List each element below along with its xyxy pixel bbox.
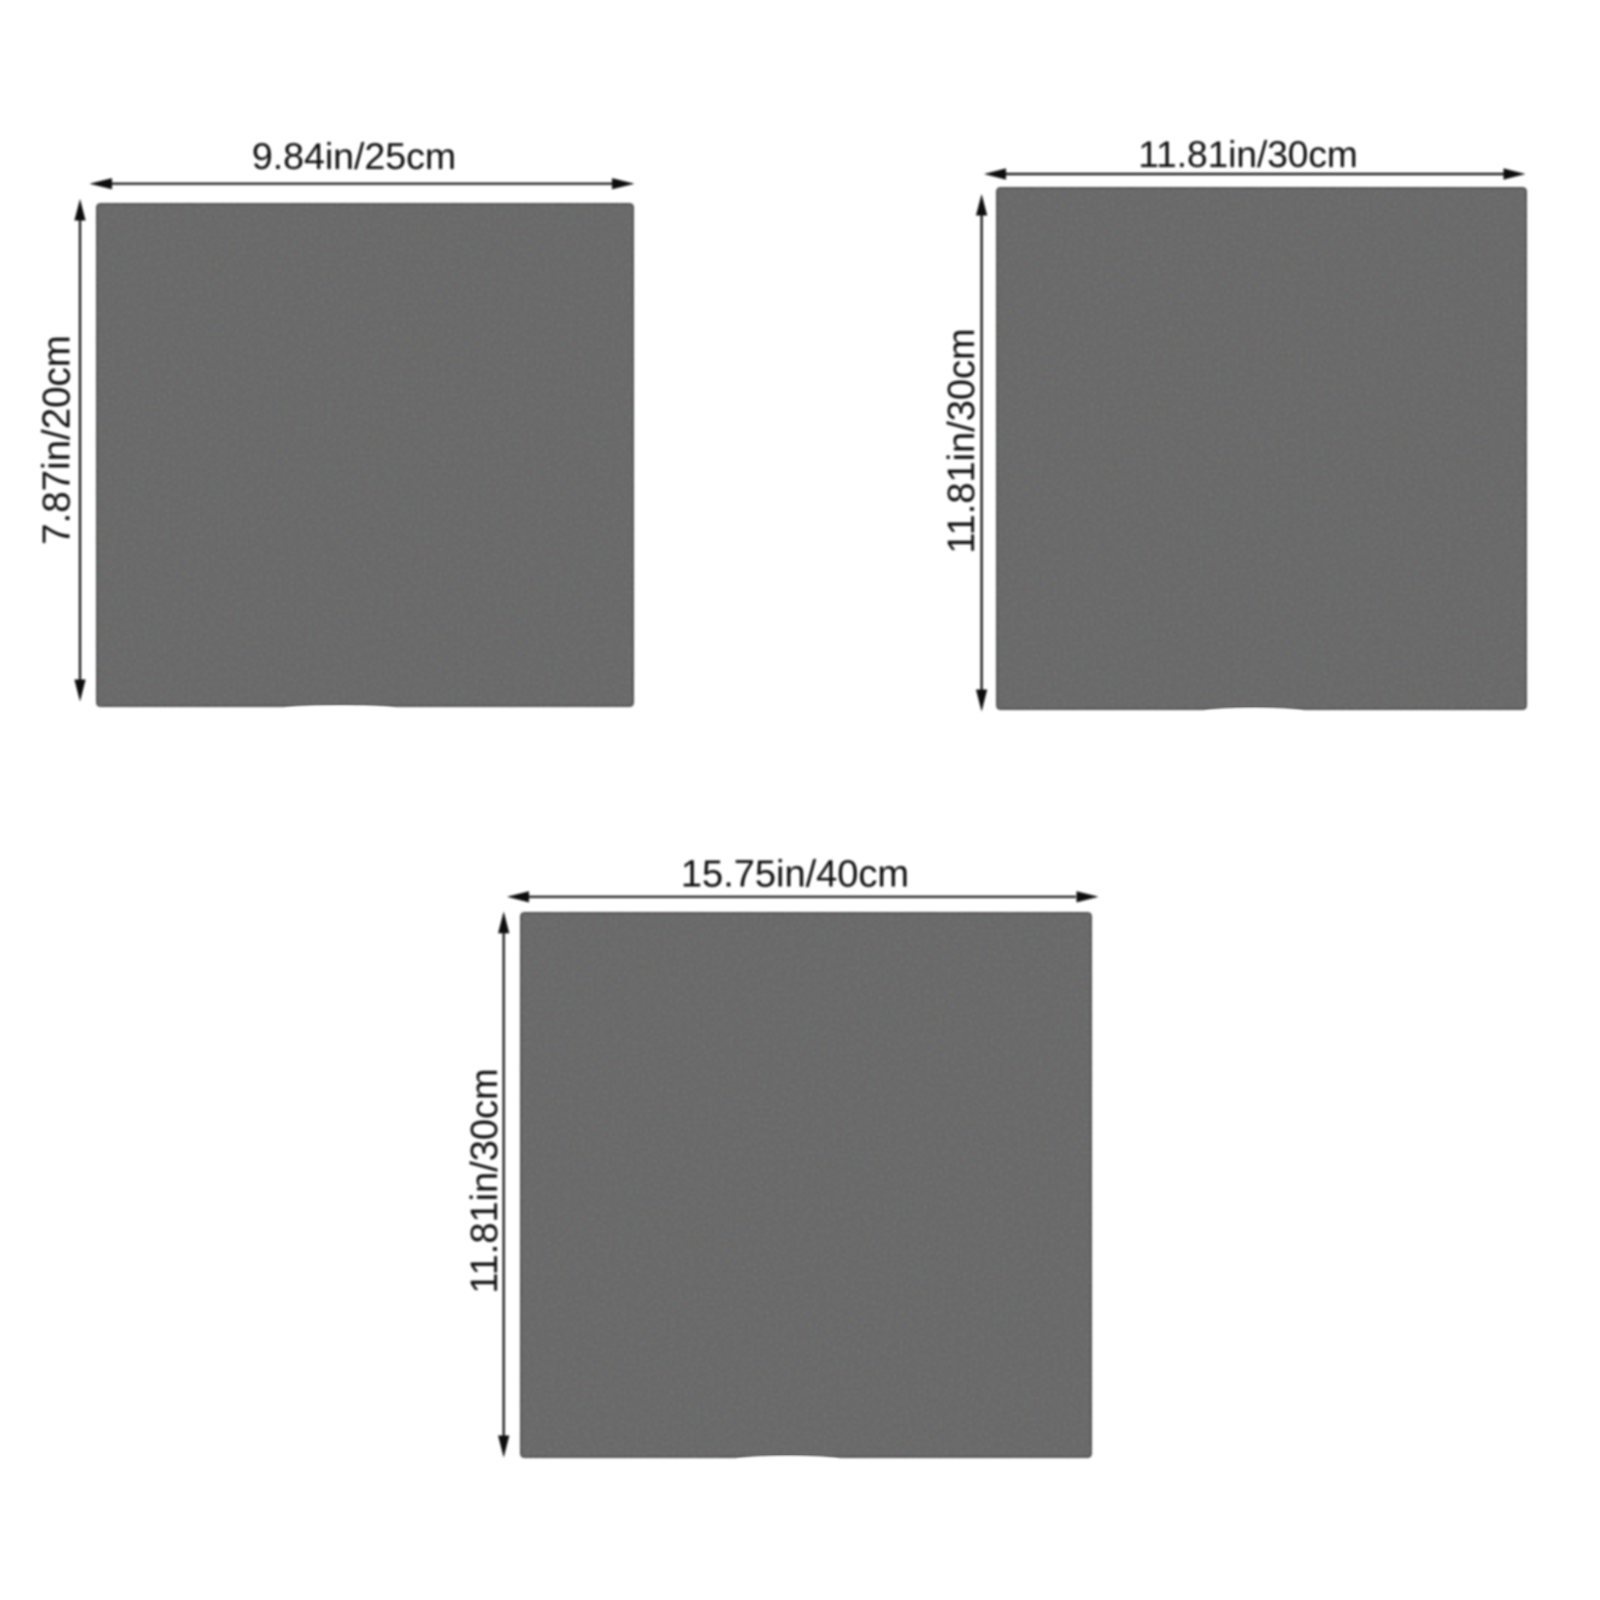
svg-text:11.81in/30cm: 11.81in/30cm — [1138, 134, 1357, 175]
svg-text:15.75in/40cm: 15.75in/40cm — [681, 854, 909, 896]
svg-text:11.81in/30cm: 11.81in/30cm — [941, 328, 983, 553]
svg-text:9.84in/25cm: 9.84in/25cm — [252, 135, 456, 177]
svg-text:7.87in/20cm: 7.87in/20cm — [36, 335, 79, 545]
svg-text:11.81in/30cm: 11.81in/30cm — [464, 1068, 506, 1293]
